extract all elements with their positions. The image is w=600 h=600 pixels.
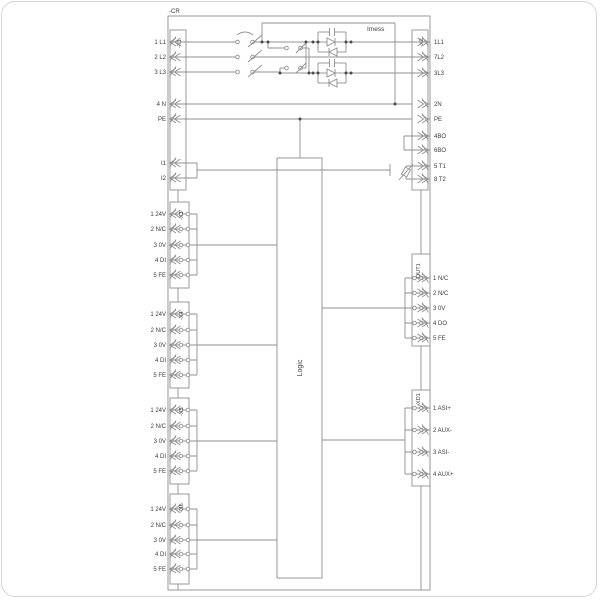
terminal-label: 2 N/C bbox=[151, 227, 167, 233]
terminal-label: 5 FE bbox=[153, 469, 166, 475]
imess-label: Imess bbox=[367, 26, 385, 33]
terminal-label: 3 0V bbox=[154, 343, 166, 349]
terminal-label: 3 0V bbox=[154, 538, 166, 544]
x2-terminal-label: 5 T1 bbox=[434, 164, 447, 170]
terminal-label: 5 FE bbox=[153, 373, 166, 379]
terminal-label: 2 N/C bbox=[151, 328, 167, 334]
terminal-label: 1 24V bbox=[150, 212, 166, 218]
left-group-3-label: -X5 bbox=[179, 407, 185, 416]
xd1-labels: 1 ASI+ 2 AUX- 3 ASI- 4 AUX+ bbox=[433, 406, 454, 478]
x2-terminal-label: 8 T2 bbox=[434, 177, 447, 183]
left-group-4-label: -X6 bbox=[179, 503, 185, 512]
out1-group-label: -OUT1 bbox=[416, 263, 422, 280]
x1-terminal-label: PE bbox=[158, 117, 166, 123]
x1-connector-label: -X1 bbox=[177, 39, 183, 48]
left-group-2-label: -X4 bbox=[179, 311, 185, 320]
terminal-label: 4 DI bbox=[155, 258, 166, 264]
terminal-label: 5 FE bbox=[153, 273, 166, 279]
x1-terminal-label: 2 L2 bbox=[154, 55, 166, 61]
x1-terminal-label: 4 N bbox=[157, 102, 166, 108]
terminal-label: 1 24V bbox=[150, 312, 166, 318]
terminal-label: 2 AUX- bbox=[433, 428, 452, 434]
terminal-label: 2 N/C bbox=[433, 291, 449, 297]
left-group-2-labels: 1 24V 2 N/C 3 0V 4 DI 5 FE bbox=[150, 312, 166, 379]
x1-terminal-labels: 1 L1 2 L2 3 L3 4 N PE I1 I2 bbox=[154, 40, 166, 182]
x1-connector bbox=[170, 30, 186, 190]
x2-terminal-labels: 1L1 7L2 3L3 2N PE 4BO 6BO 5 T1 8 T2 bbox=[434, 40, 447, 183]
terminal-label: 5 FE bbox=[153, 567, 166, 573]
x2-terminal-label: 6BO bbox=[434, 148, 446, 154]
left-group-1-label: -X3 bbox=[179, 211, 185, 220]
device-label: -CR bbox=[169, 9, 180, 15]
terminal-label: 3 0V bbox=[154, 439, 166, 445]
x2-terminal-label: 1L1 bbox=[434, 40, 445, 46]
x1-terminal-label: I1 bbox=[161, 161, 167, 167]
terminal-label: 3 0V bbox=[154, 243, 166, 249]
x2-terminal-label: PE bbox=[434, 117, 442, 123]
terminal-label: 1 N/C bbox=[433, 276, 449, 282]
x2-terminal-label: 7L2 bbox=[434, 55, 445, 61]
terminal-label: 3 0V bbox=[433, 306, 445, 312]
x2-terminal-label: 2N bbox=[434, 102, 442, 108]
terminal-label: 4 DO bbox=[433, 321, 447, 327]
x1-terminal-label: 3 L3 bbox=[154, 70, 166, 76]
terminal-label: 4 DI bbox=[155, 358, 166, 364]
left-group-4-labels: 1 24V 2 N/C 3 0V 4 DI 5 FE bbox=[150, 507, 166, 573]
schematic-page: -CR Logic -X1 bbox=[0, 0, 600, 600]
terminal-label: 4 DI bbox=[155, 552, 166, 558]
xd1-group-label: -XD1 bbox=[416, 393, 422, 406]
x1-terminal-label: 1 L1 bbox=[154, 40, 166, 46]
x2-terminal-label: 3L3 bbox=[434, 71, 445, 77]
terminal-label: 4 AUX+ bbox=[433, 472, 454, 478]
left-group-3-labels: 1 24V 2 N/C 3 0V 4 DI 5 FE bbox=[150, 408, 166, 475]
terminal-label: 2 N/C bbox=[151, 424, 167, 430]
x2-terminal-label: 4BO bbox=[434, 134, 446, 140]
left-group-1-labels: 1 24V 2 N/C 3 0V 4 DI 5 FE bbox=[150, 212, 166, 279]
logic-label: Logic bbox=[297, 359, 304, 376]
terminal-label: 1 24V bbox=[150, 408, 166, 414]
terminal-label: 5 FE bbox=[433, 336, 446, 342]
terminal-label: 3 ASI- bbox=[433, 450, 449, 456]
terminal-label: 1 ASI+ bbox=[433, 406, 451, 412]
out1-labels: 1 N/C 2 N/C 3 0V 4 DO 5 FE bbox=[433, 276, 449, 342]
terminal-label: 4 DI bbox=[155, 454, 166, 460]
x1-terminal-label: I2 bbox=[161, 176, 167, 182]
wiring-diagram: -CR Logic -X1 bbox=[0, 0, 600, 600]
terminal-label: 1 24V bbox=[150, 507, 166, 513]
terminal-label: 2 N/C bbox=[151, 523, 167, 529]
